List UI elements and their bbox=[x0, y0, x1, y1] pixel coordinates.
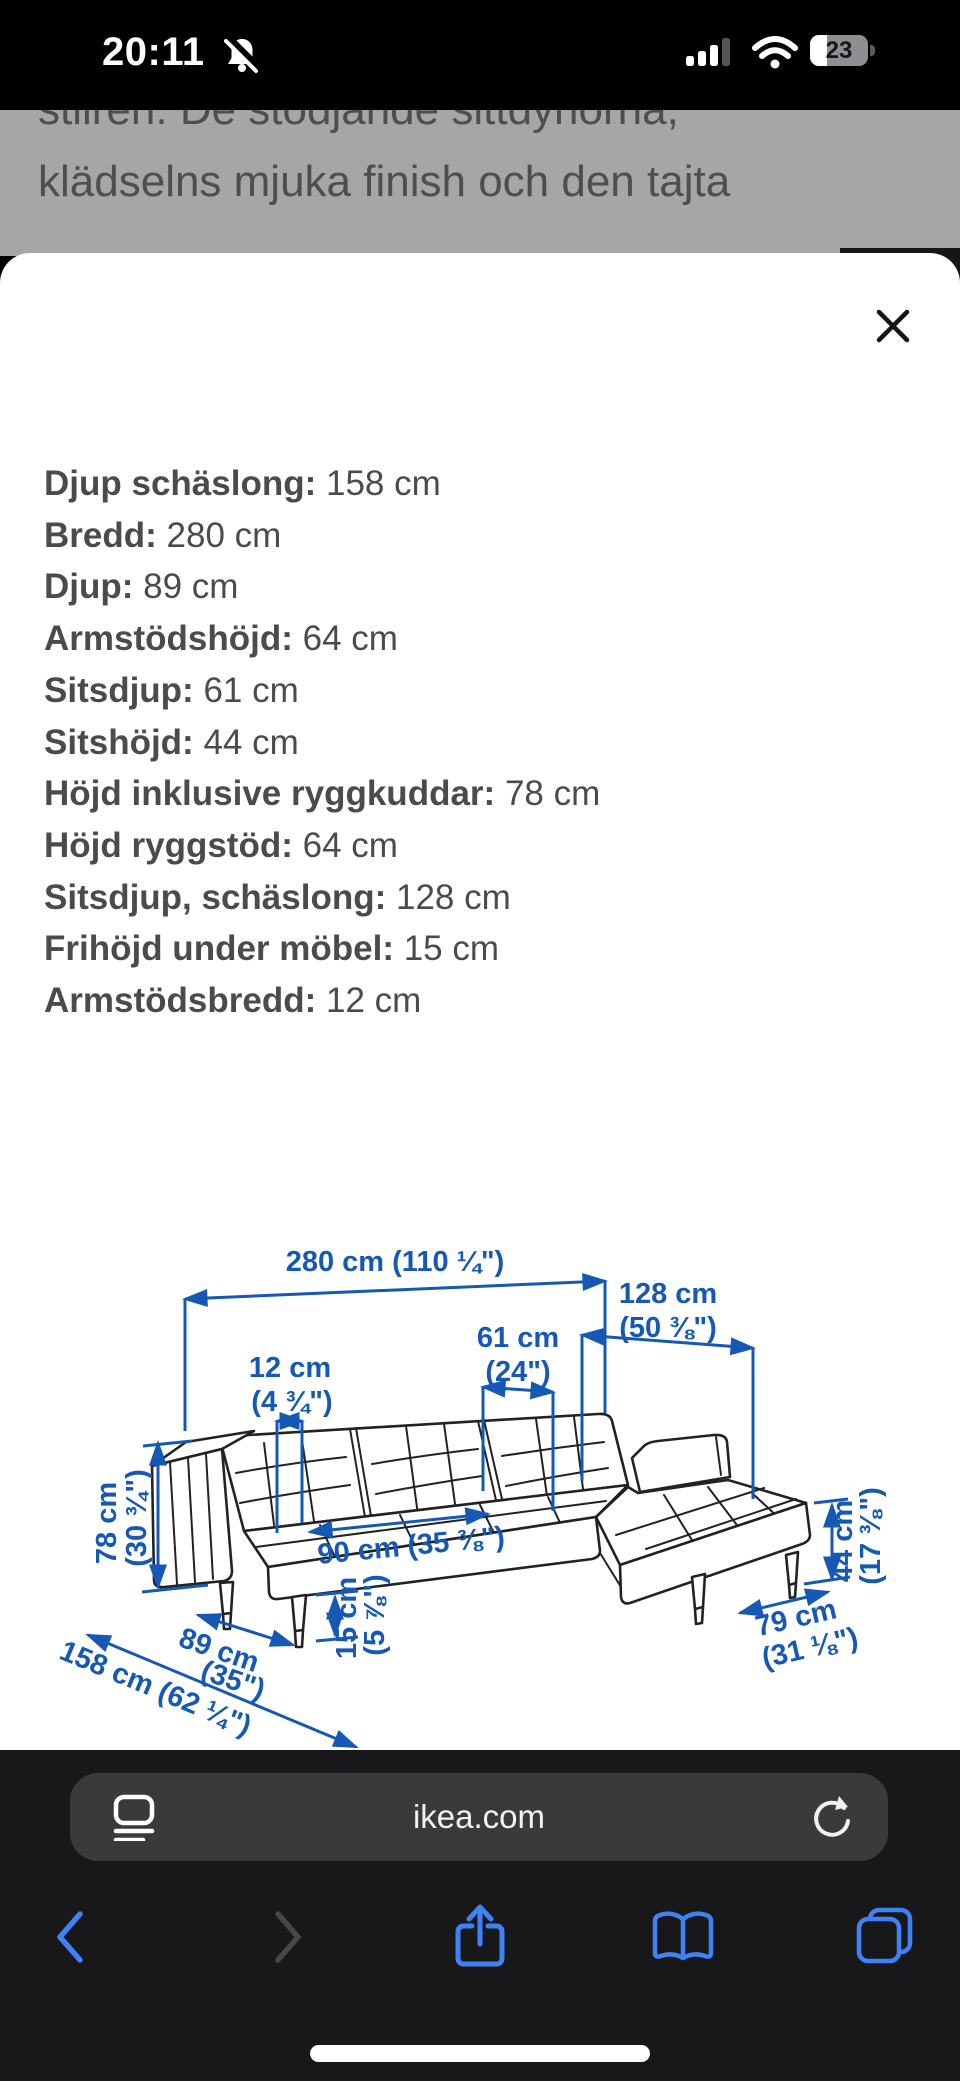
forward-button[interactable] bbox=[266, 1908, 308, 1971]
tabs-icon bbox=[854, 1906, 916, 1964]
wifi-icon bbox=[752, 36, 798, 75]
label-armrest-width-cm: 12 cm bbox=[249, 1352, 331, 1384]
measurement-row: Armstödshöjd: 64 cm bbox=[44, 613, 600, 665]
measurement-row: Sitshöjd: 44 cm bbox=[44, 717, 600, 769]
notifications-muted-icon bbox=[224, 36, 260, 79]
page-paragraph: stilren. De stödjande sittdynorna, kläds… bbox=[38, 110, 730, 218]
close-icon bbox=[872, 305, 914, 347]
share-button[interactable] bbox=[450, 1902, 510, 1977]
measurement-row: Armstödsbredd: 12 cm bbox=[44, 975, 600, 1027]
label-total-width: 280 cm (110 ¼") bbox=[286, 1246, 505, 1278]
cellular-signal-icon bbox=[686, 36, 738, 73]
label-seat-width-in: (24") bbox=[485, 1356, 550, 1388]
home-indicator[interactable] bbox=[310, 2045, 650, 2062]
measurement-row: Bredd: 280 cm bbox=[44, 510, 600, 562]
measurements-list: Djup schäslong: 158 cm Bredd: 280 cm Dju… bbox=[44, 458, 600, 1027]
back-icon bbox=[50, 1908, 92, 1966]
reload-icon[interactable] bbox=[808, 1793, 854, 1848]
clock: 20:11 bbox=[102, 30, 205, 75]
tabs-button[interactable] bbox=[854, 1906, 916, 1969]
label-clearance-in: (5 ⅞") bbox=[359, 1574, 391, 1655]
label-seat-height-in: (17 ⅜") bbox=[855, 1487, 887, 1585]
url-text: ikea.com bbox=[70, 1773, 888, 1861]
close-button[interactable] bbox=[872, 305, 914, 347]
page-paragraph-line2: klädselns mjuka finish och den tajta bbox=[38, 146, 730, 218]
label-height-cm: 78 cm bbox=[91, 1482, 123, 1564]
url-bar[interactable]: ikea.com bbox=[70, 1773, 888, 1861]
measurement-row: Höjd ryggstöd: 64 cm bbox=[44, 820, 600, 872]
battery-percent: 23 bbox=[810, 35, 868, 66]
status-bar: 20:11 bbox=[0, 0, 960, 110]
label-armrest-width-in: (4 ¾") bbox=[251, 1386, 332, 1418]
battery-icon: 23 bbox=[810, 35, 876, 66]
measurement-row: Frihöjd under möbel: 15 cm bbox=[44, 923, 600, 975]
back-button[interactable] bbox=[50, 1908, 92, 1971]
battery-cap bbox=[870, 45, 875, 56]
page-paragraph-line1: stilren. De stödjande sittdynorna, bbox=[38, 110, 730, 146]
bookmarks-button[interactable] bbox=[650, 1910, 716, 1969]
measurement-row: Sitsdjup, schäslong: 128 cm bbox=[44, 872, 600, 924]
label-chaise-seat-depth-in: (50 ⅜") bbox=[619, 1312, 717, 1344]
dimmed-page-background: stilren. De stödjande sittdynorna, kläds… bbox=[0, 110, 960, 256]
sofa-dimension-diagram: 280 cm (110 ¼") 128 cm (50 ⅜") 61 cm (24… bbox=[40, 1235, 920, 1750]
measurement-row: Djup: 89 cm bbox=[44, 561, 600, 613]
label-seat-width-cm: 61 cm bbox=[477, 1322, 559, 1354]
label-height-in: (30 ¾") bbox=[121, 1469, 153, 1567]
forward-icon bbox=[266, 1908, 308, 1966]
measurement-row: Höjd inklusive ryggkuddar: 78 cm bbox=[44, 768, 600, 820]
bookmarks-icon bbox=[650, 1910, 716, 1964]
measurements-sheet: Djup schäslong: 158 cm Bredd: 280 cm Dju… bbox=[0, 253, 960, 1750]
share-icon bbox=[450, 1902, 510, 1972]
label-chaise-seat-depth-cm: 128 cm bbox=[619, 1278, 717, 1310]
measurement-row: Sitsdjup: 61 cm bbox=[44, 665, 600, 717]
measurement-row: Djup schäslong: 158 cm bbox=[44, 458, 600, 510]
iphone-screen: 20:11 bbox=[0, 0, 960, 2081]
safari-bottom-bar: ikea.com bbox=[0, 1750, 960, 2081]
